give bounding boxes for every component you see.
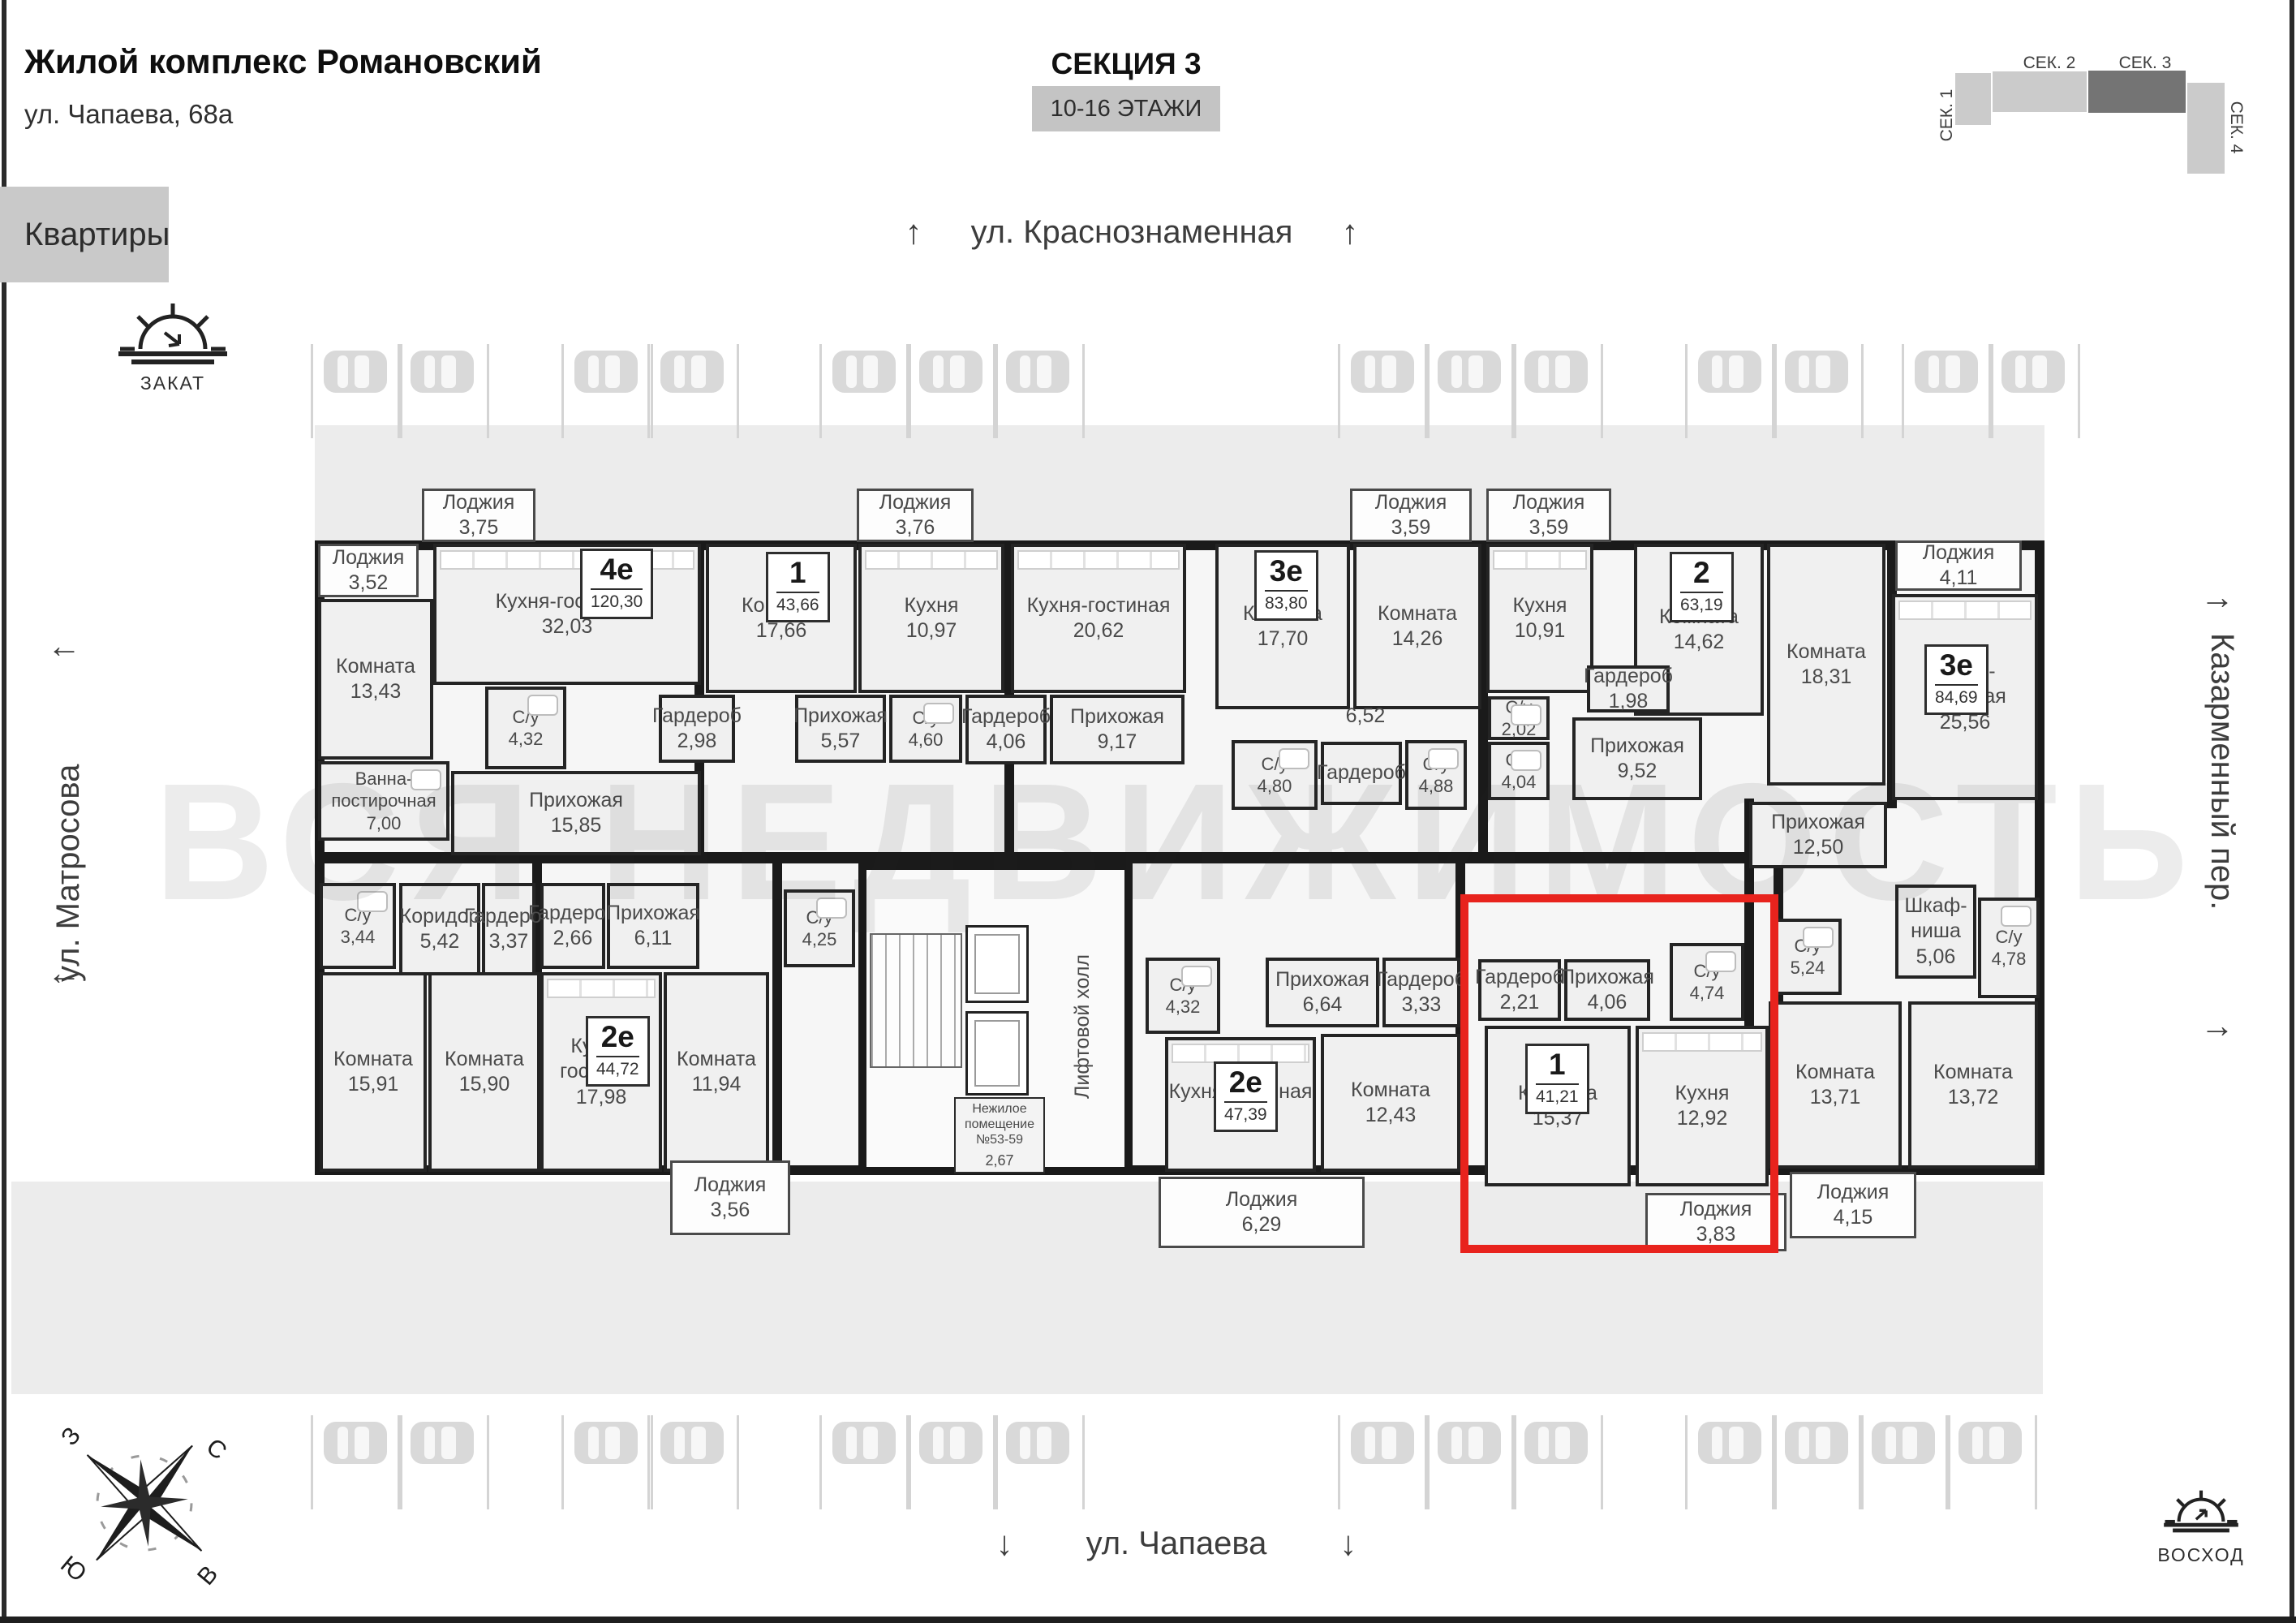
parking-stall-line: [400, 1415, 402, 1509]
parking-stall-line: [1511, 1415, 1514, 1509]
room-Гардероб-21: Гардероб: [1321, 742, 1402, 805]
room-name: Лоджия: [1375, 490, 1447, 515]
parking-stall-line: [1338, 344, 1340, 438]
arrow-left-icon: ←: [47, 626, 81, 665]
apartment-type: 1: [776, 558, 819, 589]
parking-stall-line: [1989, 344, 1991, 438]
parking-stall-line: [400, 344, 402, 438]
room-name: Шкаф-ниша: [1898, 893, 1973, 945]
apartment-area: 120,30: [591, 592, 643, 612]
stairs-icon: [870, 933, 962, 1068]
parking-stall-line: [1948, 1415, 1950, 1509]
parking-stall-line: [1082, 344, 1085, 438]
room-area: 17,98: [576, 1085, 627, 1110]
arrow-left-icon: ←: [47, 954, 81, 992]
elevator-icon: [965, 925, 1029, 1003]
room-name: Лоджия: [1923, 540, 1995, 566]
elevator-hall: Лифтовой холл: [1042, 893, 1123, 1160]
badge-divider: [1265, 590, 1308, 592]
parking-stall-line: [1425, 1415, 1427, 1509]
car-icon: [1698, 351, 1761, 393]
arrow-right-icon: →: [2200, 1006, 2234, 1045]
room-area: 18,31: [1801, 665, 1852, 690]
room-name: С/у: [1996, 926, 2023, 949]
apartment-area: 44,72: [596, 1060, 639, 1079]
room-name: Лоджия: [333, 545, 405, 570]
room-area: 12,50: [1793, 835, 1844, 860]
room-name: Прихожая: [793, 704, 888, 729]
background-strip-top: [315, 425, 2044, 540]
room-name: С/у: [1262, 753, 1288, 776]
room-name: Прихожая: [529, 788, 623, 813]
room-Прихожая-33: Прихожая12,50: [1749, 802, 1887, 868]
elevator-icon: [965, 1011, 1029, 1096]
room-Прихожая-6: Прихожая15,85: [451, 771, 701, 855]
room-С/у-26: С/у4,04: [1488, 742, 1550, 800]
parking-stall-line: [1601, 1415, 1603, 1509]
page-title: Жилой комплекс Романовский: [24, 42, 542, 81]
room-Кухня-гостиная-3: Кухня-гостиная32,03: [433, 544, 701, 685]
parking-stall-line: [398, 1415, 400, 1509]
badge-divider: [776, 592, 819, 593]
car-icon: [660, 351, 724, 393]
section-map-block-3-active[interactable]: [2088, 71, 2186, 113]
parking-stall-line: [561, 344, 564, 438]
apartment-badge-3е-84,69[interactable]: 3е 84,69: [1924, 644, 1989, 715]
parking-stall-line: [1685, 1415, 1688, 1509]
room-Гардероб-17: Гардероб4,06: [965, 695, 1047, 764]
parking-stall-line: [1991, 344, 1993, 438]
car-icon: [1698, 1422, 1761, 1464]
room-area: 15,91: [348, 1072, 399, 1097]
room-area: 6,11: [634, 926, 673, 951]
car-icon: [324, 1422, 387, 1464]
non-residential-label: Нежилое помещение №53-59: [956, 1101, 1043, 1148]
room-area: 7,00: [367, 812, 402, 835]
room-area: 13,43: [350, 679, 402, 704]
parking-stall-line: [1082, 1415, 1085, 1509]
parking-stall-line: [909, 344, 911, 438]
section-map-label-2: СЕК. 2: [2002, 54, 2096, 73]
room-name: С/у: [1506, 749, 1533, 772]
non-residential-area: 2,67: [985, 1152, 1013, 1169]
parking-stall-line: [487, 1415, 489, 1509]
room-Гардероб-10: Гардероб2,98: [659, 695, 735, 763]
room-name: Лоджия: [879, 490, 952, 515]
arrow-up-icon: ↑: [905, 213, 922, 252]
parking-stall-line: [995, 1415, 998, 1509]
room-С/у-12: С/у4,60: [889, 695, 962, 763]
car-icon: [324, 351, 387, 393]
sunrise-label: ВОСХОД: [2148, 1544, 2254, 1566]
room-area: 11,94: [692, 1072, 742, 1097]
room-area: 13,71: [1810, 1085, 1861, 1110]
room-area: 17,70: [1258, 626, 1309, 652]
room-area: 15,85: [551, 813, 602, 838]
parking-stall-line: [1685, 344, 1688, 438]
car-icon: [1524, 351, 1588, 393]
parking-stall-line: [819, 344, 822, 438]
room-area: 2,98: [677, 729, 717, 754]
room-area: 5,57: [821, 729, 861, 754]
room-area: 15,90: [459, 1072, 510, 1097]
highlighted-apartment-outline[interactable]: [1460, 894, 1778, 1253]
car-icon: [411, 1422, 474, 1464]
room-С/у-4: С/у4,32: [485, 687, 566, 769]
apartment-badge-4е-120,30[interactable]: 4е 120,30: [580, 549, 653, 619]
section-title: СЕКЦИЯ 3: [1032, 47, 1220, 81]
non-residential-room: Нежилое помещение №53-59 2,67: [954, 1097, 1045, 1173]
room-name: Комната: [1378, 601, 1457, 626]
room-name: Комната: [333, 1047, 413, 1072]
room-Прихожая-11: Прихожая5,57: [795, 695, 886, 763]
arrow-up-icon: ↑: [1341, 213, 1358, 252]
room-name: С/у: [1423, 753, 1450, 776]
parking-stall-line: [1859, 1415, 1861, 1509]
section-map: СЕК. 1 СЕК. 2 СЕК. 3 СЕК. 4: [1931, 32, 2272, 195]
sunrise-block: ВОСХОД: [2148, 1482, 2254, 1566]
section-map-label-4: СЕК. 4: [2226, 95, 2246, 160]
parking-stall-line: [819, 1415, 822, 1509]
badge-divider: [591, 588, 643, 590]
car-icon: [1351, 351, 1414, 393]
room-area: 10,91: [1515, 618, 1566, 644]
room-Гардероб-45: Гардероб2,66: [540, 883, 605, 969]
apartment-badge-2е-47,39[interactable]: 2е 47,39: [1214, 1061, 1278, 1132]
compass-south: Ю: [55, 1551, 91, 1587]
car-icon: [1006, 351, 1069, 393]
room-Комната-30: Комната18,31: [1767, 544, 1885, 786]
parking-stall-line: [1514, 1415, 1516, 1509]
room-area: 9,52: [1618, 759, 1658, 784]
parking-stall-line: [906, 1415, 909, 1509]
apartments-tab-label: Квартиры: [0, 217, 170, 253]
room-area: 3,37: [489, 929, 529, 954]
room-area: 6,64: [1303, 992, 1343, 1018]
room-name: С/у: [345, 904, 372, 927]
room-area: 12,43: [1365, 1103, 1417, 1128]
room-name: Гардероб: [652, 704, 742, 729]
apartment-type: 2е: [596, 1022, 639, 1053]
street-top: ↑ ул. Краснознаменная ↑: [856, 213, 1408, 252]
apartment-badge-1-43,66[interactable]: 1 43,66: [766, 552, 830, 622]
badge-divider: [596, 1056, 639, 1057]
room-name: Гардероб: [1377, 967, 1466, 992]
room-Лоджия-39: Лоджия4,15: [1790, 1172, 1916, 1238]
parking-stall-line: [561, 1415, 564, 1509]
room-area: 10,97: [906, 618, 957, 644]
room-Комната-49: Комната11,94: [664, 972, 769, 1172]
apartment-badge-2-63,19[interactable]: 2 63,19: [1670, 552, 1734, 622]
room-area: 9,17: [1098, 730, 1137, 755]
room-name: Лоджия: [1513, 490, 1585, 515]
room-name: Лоджия: [694, 1173, 767, 1198]
room-name: Комната: [336, 654, 415, 679]
frame-line-bottom: [0, 1617, 2296, 1623]
room-area: 4,88: [1419, 775, 1454, 798]
parking-stall-line: [1946, 1415, 1948, 1509]
parking-stall-line: [651, 1415, 653, 1509]
elevator-hall-label: Лифтовой холл: [1071, 954, 1094, 1099]
badge-divider: [1935, 684, 1978, 686]
section-map-label-1: СЕК. 1: [1937, 83, 1957, 148]
apartment-area: 83,80: [1265, 594, 1308, 613]
room-С/у-51: С/у4,32: [1146, 958, 1220, 1034]
room-Комната-43: Комната15,91: [320, 972, 427, 1172]
parking-stall-line: [995, 344, 998, 438]
address-subtitle: ул. Чапаева, 68а: [24, 99, 233, 130]
room-area: 3,59: [1529, 515, 1569, 540]
car-icon: [1351, 1422, 1414, 1464]
parking-stall-line: [1861, 1415, 1864, 1509]
parking-stall-line: [993, 344, 995, 438]
room-Гардероб-28: Гардероб1,98: [1587, 665, 1670, 712]
car-icon: [832, 1422, 896, 1464]
room-Прихожая-18: Прихожая9,17: [1050, 695, 1185, 764]
apartment-area: 47,39: [1224, 1105, 1267, 1125]
car-icon: [1006, 1422, 1069, 1464]
room-Гардероб-53: Гардероб3,33: [1382, 958, 1460, 1027]
apartment-type: 2е: [1224, 1067, 1267, 1099]
room-Гардероб-42: Гардероб3,37: [482, 883, 535, 975]
room-area: 14,62: [1674, 630, 1725, 655]
car-icon: [660, 1422, 724, 1464]
sunset-block: ЗАКАТ: [96, 299, 250, 394]
parking-stall-line: [311, 1415, 313, 1509]
room-Лоджия-50: Лоджия3,56: [670, 1160, 790, 1235]
room-Прихожая-29: Прихожая9,52: [1572, 717, 1702, 800]
room-name: С/у: [1170, 974, 1197, 997]
car-icon: [411, 351, 474, 393]
room-area: 6,52: [1346, 704, 1386, 729]
street-left-label: ул. Матросова: [50, 674, 87, 982]
parking-stall-line: [647, 344, 650, 438]
apartment-area: 63,19: [1680, 596, 1723, 615]
room-Кухня-24: Кухня10,91: [1486, 544, 1593, 693]
sunset-icon: [96, 299, 250, 368]
parking-stall-line: [398, 344, 400, 438]
arrow-down-icon: ↓: [1339, 1524, 1357, 1563]
room-Прихожая-46: Прихожая6,11: [607, 883, 699, 969]
room-area: 14,26: [1392, 626, 1443, 652]
room-name: С/у: [806, 906, 833, 929]
badge-divider: [1224, 1101, 1267, 1103]
room-area: 3,76: [896, 515, 935, 540]
room-name: Лоджия: [1226, 1187, 1298, 1212]
room-name: Кухня: [1513, 593, 1567, 618]
room-area: 3,75: [459, 515, 499, 540]
room-Лоджия-0: Лоджия3,75: [422, 489, 535, 542]
room-Прихожая-52: Прихожая6,64: [1266, 958, 1379, 1027]
room-name: С/у: [1795, 935, 1821, 958]
room-Кухня-гостиная-13: Кухня-гостиная20,62: [1011, 544, 1186, 693]
parking-stall-line: [1427, 1415, 1430, 1509]
parking-stall-line: [906, 344, 909, 438]
room-area: 4,32: [1166, 996, 1201, 1018]
room-name: Прихожая: [1070, 704, 1164, 730]
parking-stall-line: [1861, 344, 1864, 438]
room-С/у-36: С/у5,24: [1774, 919, 1842, 995]
room-name: С/у: [1506, 696, 1533, 719]
section-map-block-1[interactable]: [1955, 73, 1991, 125]
parking-stall-line: [1425, 344, 1427, 438]
parking-stall-line: [737, 1415, 739, 1509]
room-name: Комната: [1351, 1078, 1430, 1103]
room-name: С/у: [513, 706, 540, 729]
street-top-label: ул. Краснознаменная: [971, 214, 1293, 251]
compass-icon: З С Ю В: [49, 1412, 252, 1599]
room-name: Гардероб: [1317, 760, 1406, 786]
parking-stall-line: [1511, 344, 1514, 438]
room-name: Прихожая: [1590, 734, 1684, 759]
room-С/у-47: С/у4,25: [784, 889, 855, 967]
room-name: Ванна-постирочная: [321, 768, 446, 812]
frame-line-right: [2290, 0, 2294, 1623]
apartment-type: 3е: [1935, 650, 1978, 682]
room-area: 4,78: [1992, 948, 2027, 971]
parking-stall-line: [1772, 344, 1774, 438]
room-area: 13,72: [1948, 1085, 1999, 1110]
parking-stall-line: [651, 344, 653, 438]
car-icon: [1524, 1422, 1588, 1464]
room-Комната-15: Комната14,26: [1353, 544, 1481, 709]
parking-stall-line: [1514, 344, 1516, 438]
room-area: 3,44: [341, 926, 376, 949]
parking-stall-line: [2035, 1415, 2037, 1509]
parking-stall-line: [1601, 344, 1603, 438]
room-Лоджия-56: Лоджия6,29: [1159, 1177, 1365, 1248]
sunset-label: ЗАКАТ: [96, 372, 250, 394]
room-area: 3,59: [1391, 515, 1431, 540]
room-name: Гардероб: [528, 901, 617, 926]
apartment-type: 3е: [1265, 556, 1308, 588]
car-icon: [1438, 351, 1501, 393]
street-right-label: Казарменный пер.: [2204, 633, 2240, 917]
room-Комната-37: Комната13,71: [1769, 1001, 1902, 1169]
room-С/у-20: С/у4,80: [1232, 740, 1318, 810]
room-area: 5,24: [1791, 957, 1825, 979]
car-icon: [1958, 1422, 2022, 1464]
room-area: 5,06: [1916, 945, 1956, 970]
arrow-right-icon: →: [2200, 578, 2234, 617]
wall: [772, 862, 782, 1175]
parking-stall-line: [487, 344, 489, 438]
parking-stall-line: [993, 1415, 995, 1509]
room-name: Лоджия: [1817, 1180, 1890, 1205]
room-area: 3,56: [711, 1198, 750, 1223]
parking-stall-line: [1902, 344, 1904, 438]
room-area-19: 6,52: [1314, 695, 1417, 738]
room-Ванна-постирочная-5: Ванна-постирочная7,00: [318, 761, 449, 841]
car-icon: [919, 351, 982, 393]
room-area: 4,06: [987, 730, 1026, 755]
room-name: Комната: [1795, 1060, 1875, 1085]
room-area: 4,80: [1258, 775, 1292, 798]
apartments-tab[interactable]: Квартиры: [0, 187, 169, 282]
room-С/у-35: С/у4,78: [1978, 898, 2040, 998]
car-icon: [1438, 1422, 1501, 1464]
room-С/у-22: С/у4,88: [1405, 740, 1467, 810]
parking-stall-line: [2078, 344, 2080, 438]
parking-stall-line: [311, 344, 313, 438]
room-С/у-40: С/у3,44: [320, 883, 396, 969]
room-Лоджия-8: Лоджия3,76: [857, 489, 974, 542]
room-area: 4,32: [509, 728, 544, 751]
room-Шкаф-ниша-34: Шкаф-ниша5,06: [1895, 885, 1976, 979]
room-name: Лоджия: [443, 490, 515, 515]
room-area: 4,60: [909, 729, 944, 751]
car-icon: [1785, 351, 1848, 393]
room-area: 4,15: [1834, 1205, 1873, 1230]
room-С/у-25: С/у2,02: [1488, 696, 1550, 740]
room-Комната-55: Комната12,43: [1321, 1034, 1460, 1172]
room-name: Прихожая: [606, 901, 700, 926]
room-Лоджия-31: Лоджия4,11: [1895, 540, 2022, 591]
compass-north: С: [201, 1433, 232, 1465]
compass-east: В: [192, 1561, 223, 1591]
car-icon: [574, 351, 638, 393]
car-icon: [574, 1422, 638, 1464]
car-icon: [919, 1422, 982, 1464]
room-area: 6,29: [1242, 1212, 1282, 1238]
room-area: 2,02: [1502, 718, 1537, 741]
room-name: Кухня: [905, 593, 959, 618]
car-icon: [1872, 1422, 1935, 1464]
section-map-block-2[interactable]: [1993, 71, 2087, 112]
room-area: 20,62: [1073, 618, 1124, 644]
apartment-badge-3е-83,80[interactable]: 3е 83,80: [1254, 550, 1318, 621]
room-Комната-38: Комната13,72: [1908, 1001, 2038, 1169]
room-area: 4,04: [1502, 771, 1537, 794]
room-area: 1,98: [1609, 689, 1649, 714]
street-bottom: ↓ ул. Чапаева ↓: [892, 1524, 1460, 1563]
car-icon: [1915, 351, 1978, 393]
room-area: 4,25: [802, 928, 837, 951]
room-Кухня-9: Кухня10,97: [858, 544, 1004, 693]
apartment-type: 2: [1680, 558, 1723, 589]
compass-west: З: [56, 1423, 86, 1451]
arrow-down-icon: ↓: [996, 1524, 1013, 1563]
apartment-badge-2е-44,72[interactable]: 2е 44,72: [586, 1016, 650, 1087]
room-name: Гардероб: [961, 704, 1051, 730]
room-area: 2,66: [553, 926, 593, 951]
room-area: 4,11: [1940, 566, 1978, 591]
sunrise-icon: [2148, 1482, 2254, 1540]
room-name: Комната: [1786, 639, 1866, 665]
parking-stall-line: [1774, 1415, 1777, 1509]
room-Лоджия-23: Лоджия3,59: [1486, 489, 1611, 542]
section-map-block-4[interactable]: [2187, 83, 2225, 174]
room-Коридор-41: Коридор5,42: [399, 883, 480, 975]
parking-stall-line: [647, 1415, 650, 1509]
room-Лоджия-16: Лоджия3,59: [1350, 489, 1472, 542]
room-area: 3,52: [349, 570, 389, 596]
room-name: Гардероб: [1584, 664, 1673, 689]
apartment-area: 43,66: [776, 596, 819, 615]
room-name: Прихожая: [1771, 810, 1865, 835]
room-name: Комната: [445, 1047, 524, 1072]
street-bottom-label: ул. Чапаева: [1086, 1526, 1267, 1562]
apartment-area: 84,69: [1935, 688, 1978, 708]
room-area: 3,33: [1402, 992, 1442, 1018]
parking-stall-line: [737, 344, 739, 438]
floors-badge: 10-16 ЭТАЖИ: [1032, 86, 1220, 131]
car-icon: [832, 351, 896, 393]
parking-stall-line: [1338, 1415, 1340, 1509]
room-name: С/у: [913, 707, 939, 730]
car-icon: [2001, 351, 2065, 393]
car-icon: [1785, 1422, 1848, 1464]
